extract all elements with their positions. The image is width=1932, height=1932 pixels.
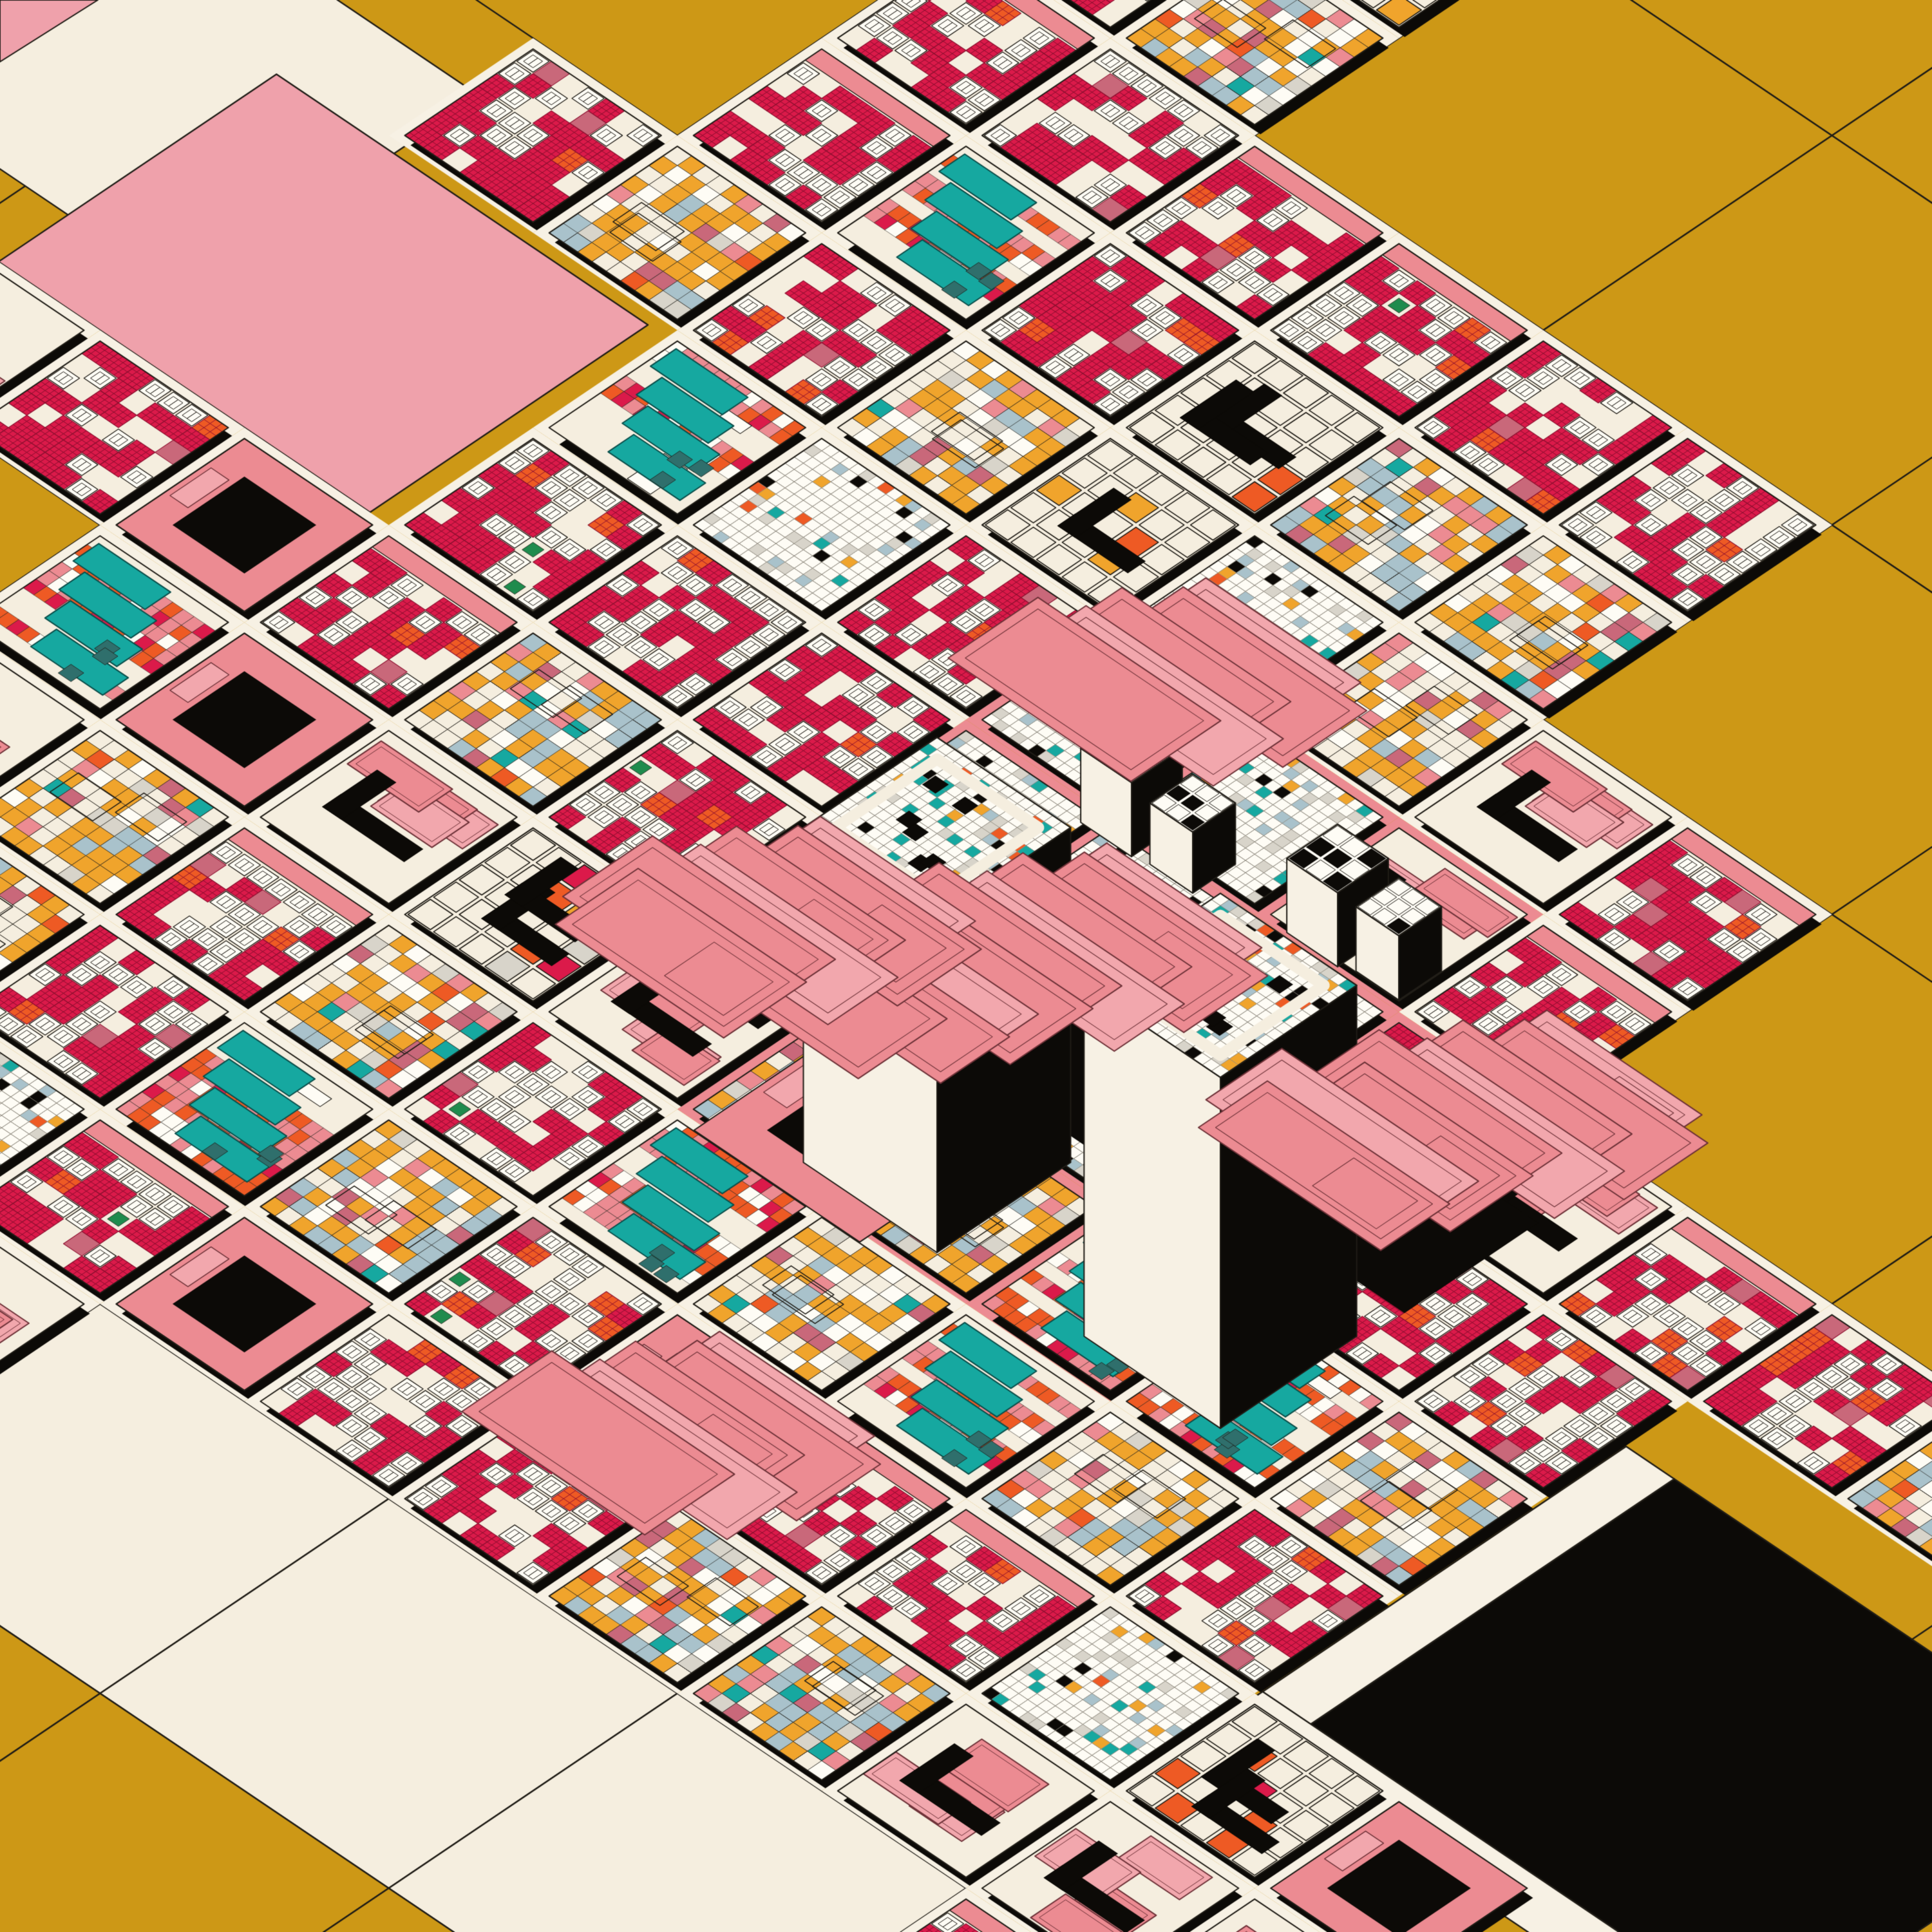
generative-artwork bbox=[0, 0, 1932, 1932]
generative-artwork-canvas bbox=[0, 0, 1932, 1932]
